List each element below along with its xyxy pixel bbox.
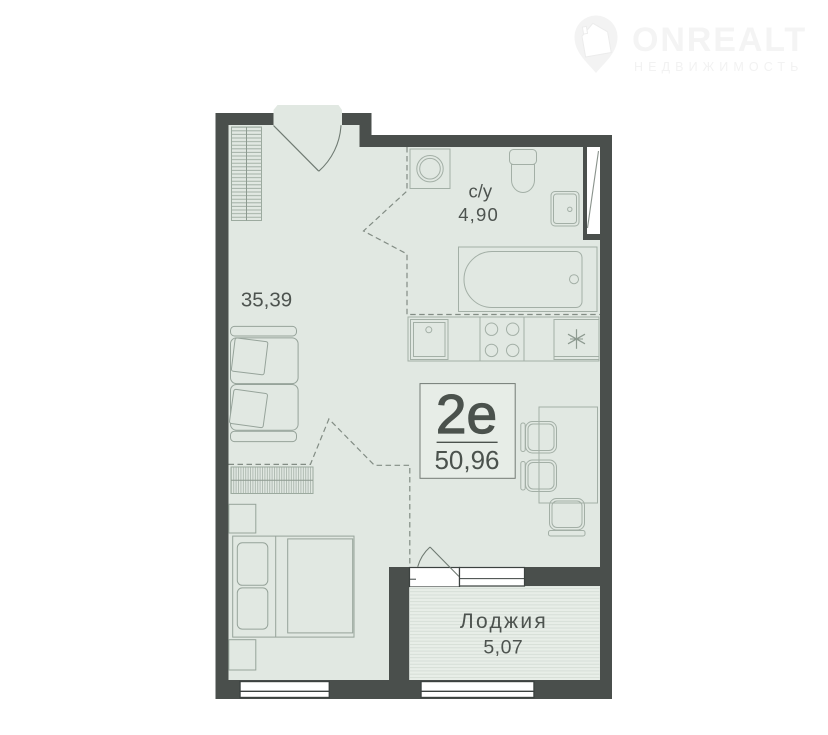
svg-text:5,07: 5,07 [483, 637, 523, 659]
svg-text:4,90: 4,90 [458, 204, 499, 225]
svg-text:НЕДВИЖИМОСТЬ: НЕДВИЖИМОСТЬ [634, 60, 803, 74]
svg-text:2е: 2е [436, 383, 497, 445]
svg-text:35,39: 35,39 [241, 289, 292, 312]
svg-text:ONREALT: ONREALT [632, 21, 807, 59]
svg-text:Лоджия: Лоджия [460, 610, 548, 633]
svg-text:с/у: с/у [468, 181, 492, 202]
svg-text:50,96: 50,96 [434, 445, 499, 475]
